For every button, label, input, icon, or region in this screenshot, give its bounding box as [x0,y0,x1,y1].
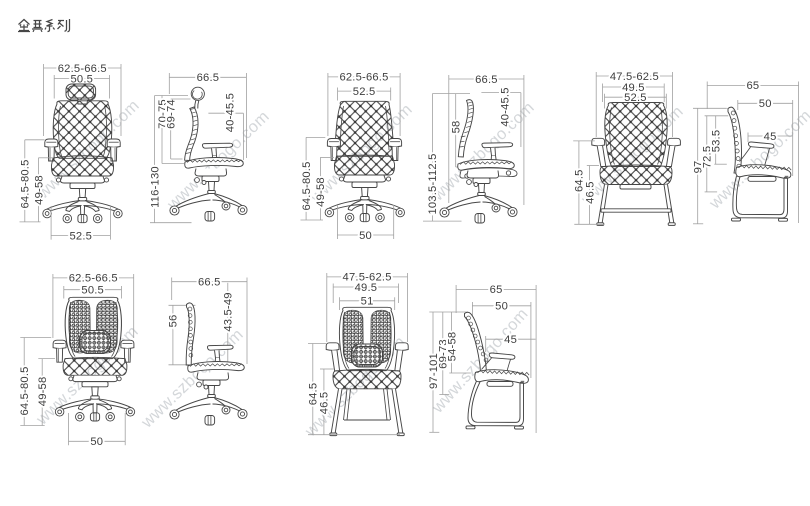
svg-text:54-58: 54-58 [446,332,458,362]
svg-text:69-74: 69-74 [166,99,178,129]
svg-text:62.5-66.5: 62.5-66.5 [69,273,118,285]
svg-text:64.5-80.5: 64.5-80.5 [20,159,32,208]
svg-text:45: 45 [764,131,777,143]
svg-text:64.5-80.5: 64.5-80.5 [19,366,31,415]
svg-text:52.5: 52.5 [70,230,93,242]
svg-text:52.5: 52.5 [353,86,376,98]
svg-text:45: 45 [504,334,517,346]
svg-text:53.5: 53.5 [711,130,723,153]
svg-text:43.5-49: 43.5-49 [223,292,235,331]
svg-text:50.5: 50.5 [81,285,104,297]
svg-text:50: 50 [495,301,508,313]
svg-text:49-58: 49-58 [33,175,45,205]
svg-text:56: 56 [168,315,180,328]
svg-text:40-45.5: 40-45.5 [224,93,236,132]
svg-text:64.5-80.5: 64.5-80.5 [301,161,313,210]
svg-text:49-58: 49-58 [37,377,49,407]
svg-text:50: 50 [759,98,772,110]
svg-text:103.5-112.5: 103.5-112.5 [427,153,439,214]
svg-text:66.5: 66.5 [198,277,221,289]
svg-text:116-130: 116-130 [149,166,161,208]
svg-text:51: 51 [361,296,374,308]
svg-text:49-58: 49-58 [315,177,327,207]
svg-text:66.5: 66.5 [197,72,220,84]
svg-text:65: 65 [746,80,759,92]
svg-text:62.5-66.5: 62.5-66.5 [339,72,388,84]
svg-text:66.5: 66.5 [475,74,498,86]
svg-text:46.5: 46.5 [319,392,331,415]
svg-text:46.5: 46.5 [584,181,596,204]
svg-text:50: 50 [90,436,103,448]
svg-text:58: 58 [451,121,463,134]
svg-text:49.5: 49.5 [355,282,378,294]
svg-text:65: 65 [490,284,503,296]
svg-text:50.5: 50.5 [71,73,94,85]
svg-text:50: 50 [359,230,372,242]
svg-text:40-45.5: 40-45.5 [499,87,511,126]
